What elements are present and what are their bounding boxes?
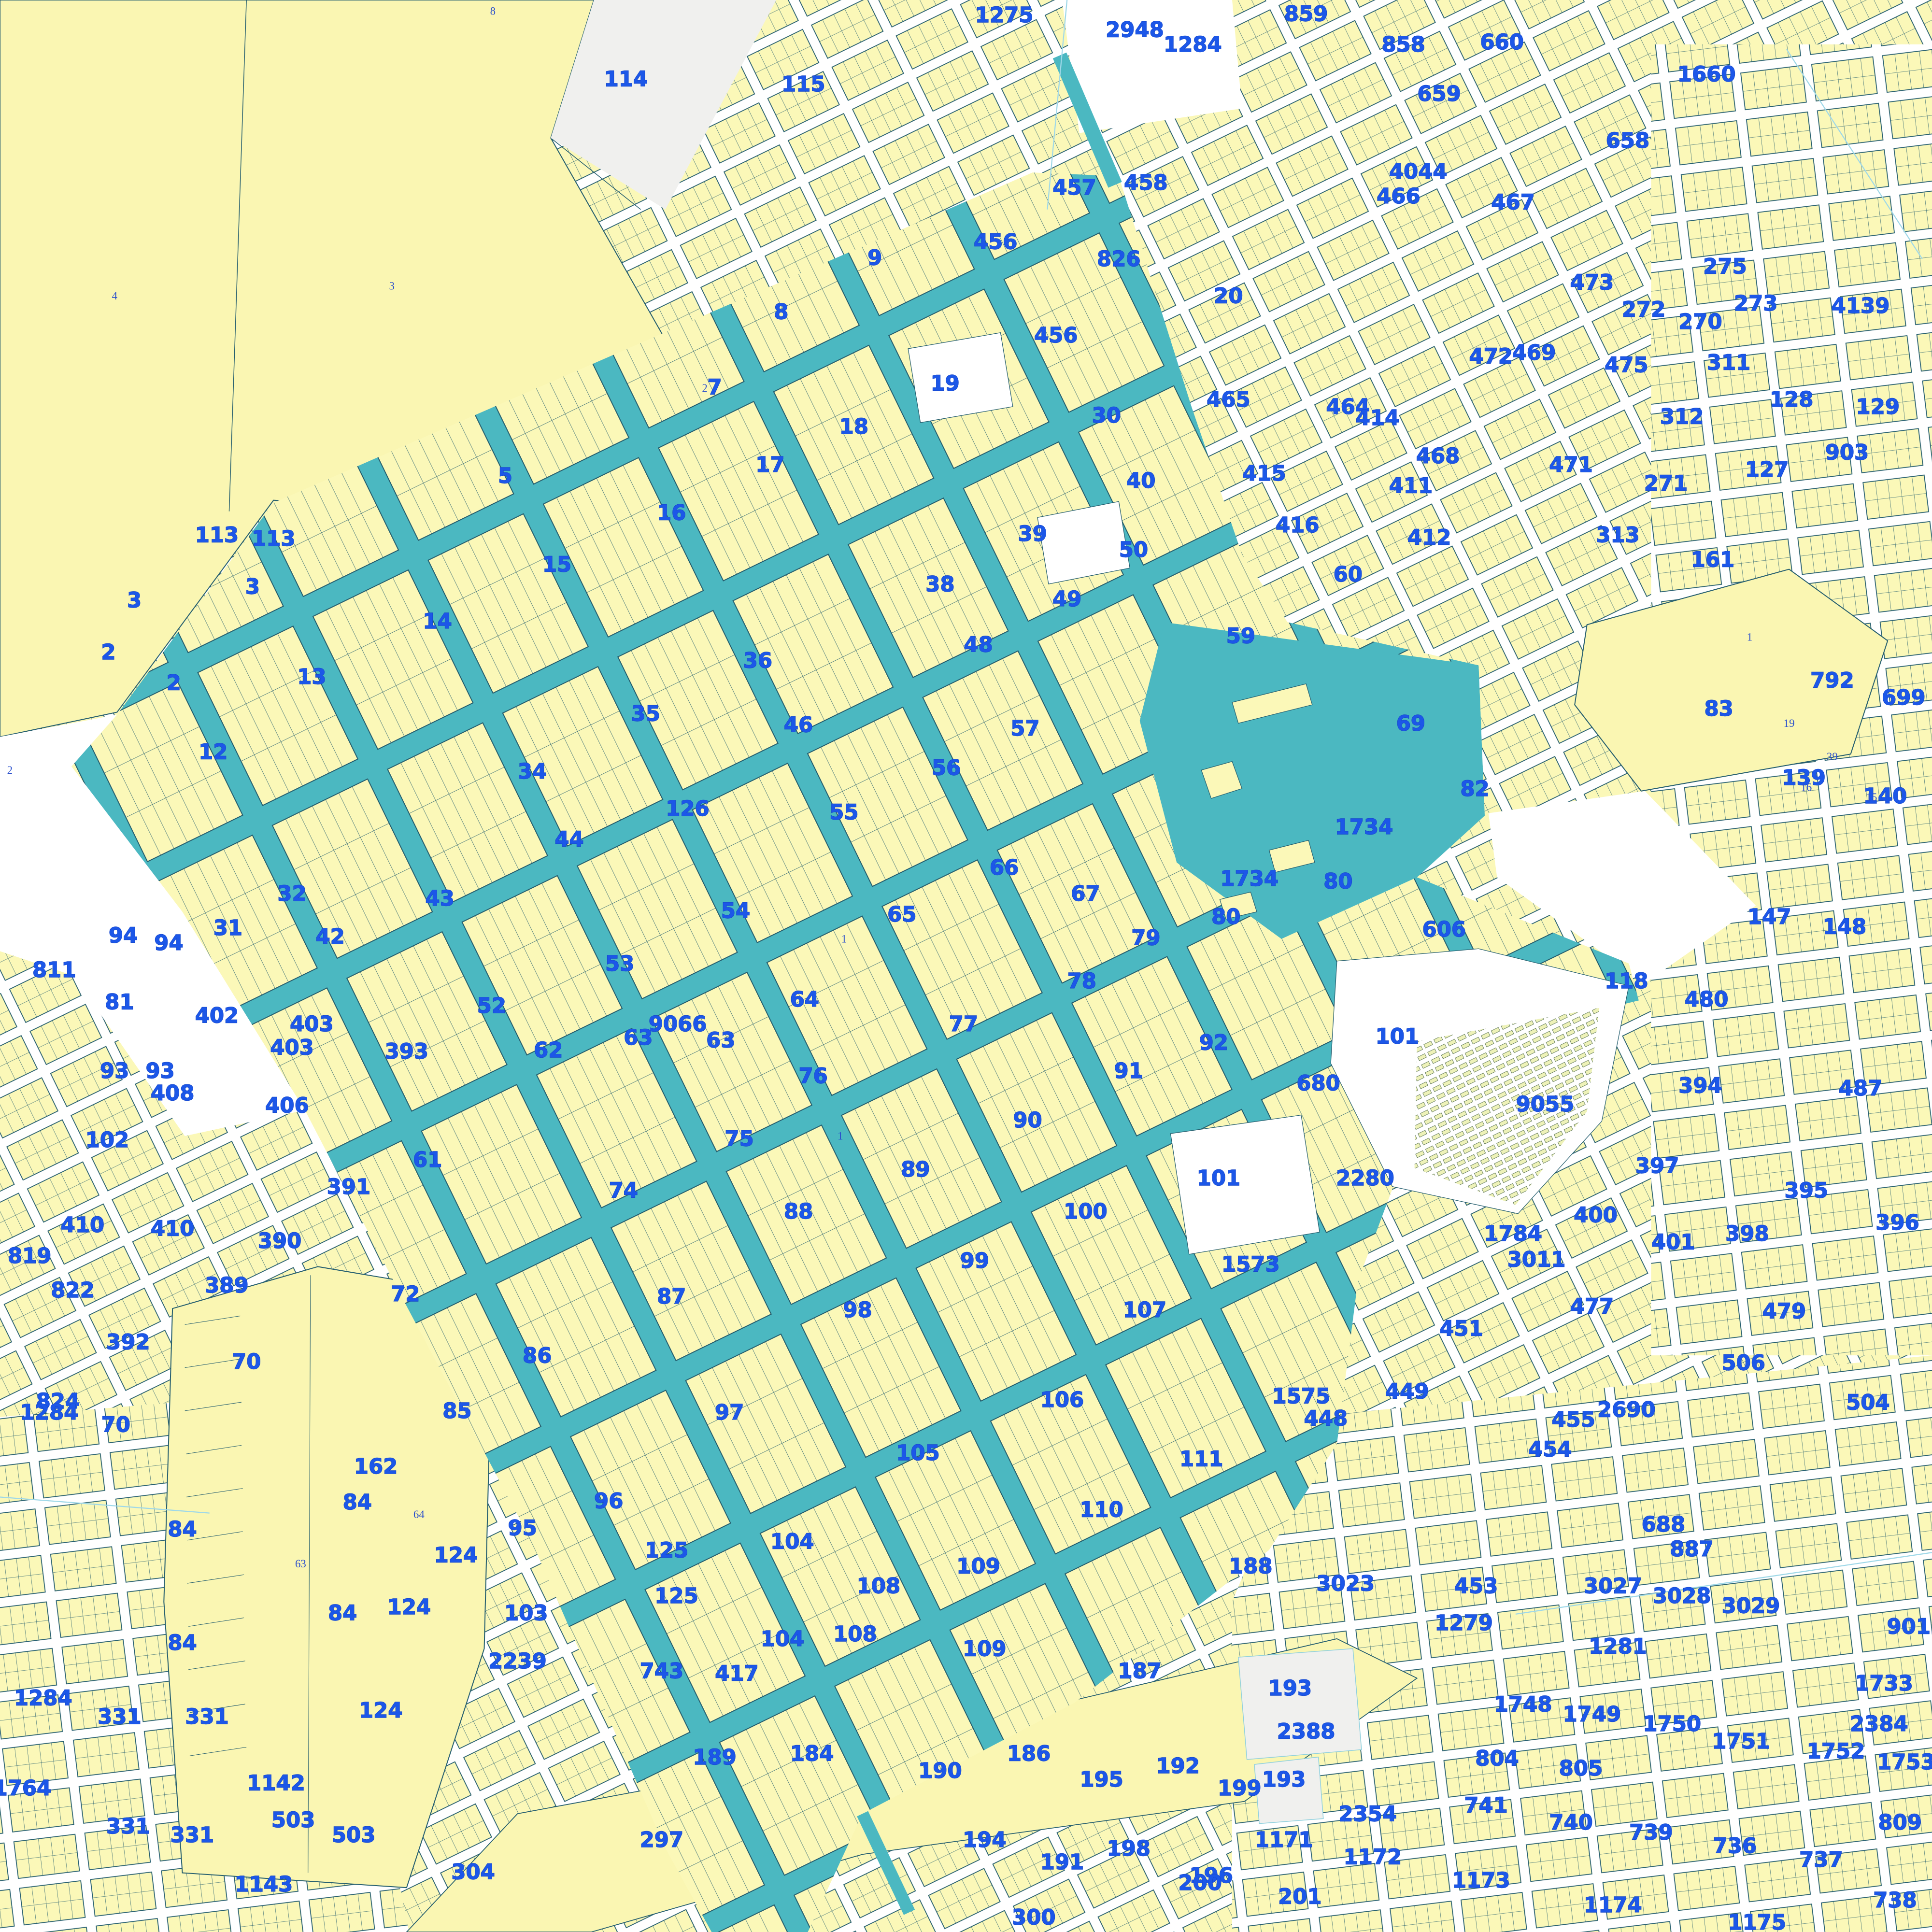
block-label: 97 — [715, 1401, 744, 1425]
block-label: 480 — [1685, 988, 1729, 1012]
block-label: 104 — [761, 1627, 805, 1651]
block-label: 4044 — [1389, 160, 1448, 184]
block-label: 859 — [1284, 2, 1328, 26]
block-label: 394 — [1678, 1074, 1722, 1098]
block-label: 699 — [1882, 686, 1926, 710]
block-label: 5 — [498, 464, 512, 488]
block-label: 1275 — [975, 3, 1034, 28]
block-label: 736 — [1713, 1834, 1757, 1859]
block-label: 161 — [1691, 548, 1735, 572]
block-label: 448 — [1304, 1407, 1348, 1431]
block-label: 87 — [657, 1285, 686, 1309]
block-label: 40 — [1126, 469, 1155, 493]
block-label: 190 — [918, 1759, 962, 1783]
block-label: 106 — [1040, 1388, 1084, 1412]
block-label: 479 — [1762, 1300, 1806, 1324]
block-label: 162 — [354, 1455, 398, 1479]
block-label: 64 — [790, 988, 819, 1012]
block-label: 415 — [1242, 462, 1286, 486]
block-label: 53 — [605, 952, 634, 976]
block-label: 127 — [1745, 458, 1789, 482]
block-label: 192 — [1156, 1754, 1200, 1778]
block-label: 1279 — [1435, 1611, 1493, 1635]
block-label: 271 — [1644, 471, 1688, 496]
block-label: 270 — [1678, 310, 1722, 334]
block-label: 86 — [523, 1344, 552, 1368]
block-label: 72 — [391, 1282, 420, 1307]
block-label: 91 — [1114, 1059, 1143, 1083]
block-label: 62 — [534, 1038, 563, 1063]
block-label: 124 — [387, 1595, 431, 1619]
parcel-number: 4 — [112, 290, 118, 302]
block-label: 1733 — [1855, 1672, 1913, 1696]
block-label: 65 — [887, 903, 916, 927]
block-label: 109 — [956, 1555, 1000, 1579]
block-label: 84 — [168, 1631, 197, 1655]
block-label: 80 — [1211, 905, 1240, 929]
block-label: 2388 — [1277, 1719, 1335, 1744]
block-label: 414 — [1356, 406, 1400, 430]
block-label: 297 — [640, 1828, 684, 1852]
block-label: 1752 — [1807, 1739, 1865, 1763]
block-label: 1284 — [20, 1401, 79, 1425]
block-label: 82 — [1460, 777, 1489, 801]
block-label: 113 — [252, 527, 296, 551]
block-label: 12 — [199, 740, 227, 764]
block-label: 454 — [1528, 1437, 1572, 1462]
block-label: 126 — [666, 797, 710, 821]
block-label: 1749 — [1563, 1703, 1621, 1727]
block-label: 108 — [833, 1622, 877, 1647]
block-label: 85 — [442, 1399, 471, 1423]
block-label: 391 — [327, 1175, 371, 1199]
block-label: 1753 — [1877, 1750, 1932, 1775]
block-label: 198 — [1107, 1837, 1151, 1861]
block-label: 390 — [258, 1229, 302, 1253]
block-label: 36 — [743, 649, 772, 673]
block-label: 449 — [1385, 1379, 1429, 1404]
block-label: 456 — [1034, 324, 1078, 348]
block-label: 94 — [154, 931, 183, 955]
block-label: 1172 — [1343, 1846, 1402, 1870]
parcel-number: 63 — [295, 1558, 306, 1570]
block-label: 410 — [61, 1213, 105, 1237]
block-label: 92 — [1199, 1031, 1228, 1055]
block-label: 805 — [1559, 1757, 1603, 1781]
block-label: 67 — [1071, 882, 1100, 906]
block-label: 1748 — [1494, 1692, 1552, 1717]
block-label: 3028 — [1653, 1584, 1711, 1608]
block-label: 42 — [316, 925, 345, 949]
block-label: 455 — [1551, 1408, 1595, 1432]
block-label: 104 — [770, 1530, 814, 1554]
block-label: 44 — [554, 828, 583, 852]
block-label: 468 — [1416, 444, 1460, 469]
block-label: 1175 — [1728, 1911, 1786, 1932]
white-block-19 — [908, 333, 1013, 423]
block-label: 393 — [385, 1039, 429, 1064]
block-label: 1143 — [235, 1873, 293, 1897]
block-label: 124 — [434, 1544, 478, 1568]
block-label: 504 — [1846, 1391, 1890, 1415]
block-label: 400 — [1574, 1204, 1618, 1228]
block-label: 189 — [693, 1746, 737, 1770]
block-label: 70 — [101, 1413, 130, 1437]
block-label: 465 — [1207, 388, 1250, 412]
block-label: 2354 — [1338, 1802, 1397, 1826]
block-label: 475 — [1605, 353, 1648, 377]
block-label: 74 — [609, 1179, 638, 1203]
block-label: 200 — [1178, 1871, 1222, 1895]
block-label: 659 — [1417, 82, 1461, 106]
block-label: 16 — [657, 501, 686, 526]
block-label: 903 — [1825, 441, 1869, 465]
block-label: 1734 — [1335, 815, 1393, 839]
block-label: 503 — [332, 1823, 376, 1847]
block-label: 15 — [542, 553, 571, 577]
block-label: 57 — [1010, 717, 1039, 741]
block-label: 487 — [1839, 1077, 1883, 1101]
block-label: 737 — [1799, 1848, 1843, 1872]
block-label: 1284 — [14, 1687, 72, 1711]
block-label: 66 — [990, 856, 1019, 880]
cadastral-map: 1141159871275294812848598586606591660658… — [0, 0, 1932, 1932]
block-label: 858 — [1381, 33, 1425, 57]
block-label: 32 — [277, 882, 306, 906]
parcel-number: 1 — [838, 1130, 843, 1142]
block-label: 804 — [1475, 1747, 1519, 1771]
parcel-number: 39 — [1827, 751, 1838, 763]
block-label: 52 — [477, 994, 506, 1018]
block-label: 792 — [1810, 668, 1854, 693]
block-label: 396 — [1875, 1211, 1919, 1235]
block-label: 78 — [1067, 969, 1096, 994]
block-label: 88 — [784, 1200, 813, 1224]
block-label: 1784 — [1484, 1222, 1542, 1246]
block-label: 80 — [1323, 869, 1352, 894]
block-label: 331 — [170, 1823, 214, 1847]
block-label: 61 — [413, 1148, 442, 1172]
block-label: 3023 — [1316, 1572, 1375, 1596]
block-label: 102 — [85, 1128, 129, 1152]
block-label: 90 — [1013, 1108, 1042, 1133]
block-label: 403 — [270, 1036, 314, 1060]
parcel-number: 64 — [413, 1508, 425, 1520]
block-label: 471 — [1549, 453, 1593, 477]
block-label: 83 — [1705, 697, 1733, 721]
block-label: 477 — [1570, 1294, 1614, 1319]
block-label: 9066 — [649, 1012, 707, 1037]
block-label: 458 — [1124, 171, 1168, 195]
block-label: 331 — [106, 1815, 150, 1839]
block-label: 124 — [359, 1699, 403, 1723]
block-label: 451 — [1439, 1317, 1483, 1341]
block-label: 1734 — [1220, 867, 1279, 891]
block-label: 1764 — [0, 1776, 51, 1801]
parcel-number: 2 — [7, 764, 13, 776]
block-label: 680 — [1296, 1072, 1340, 1096]
block-label: 408 — [151, 1081, 195, 1106]
block-label: 503 — [271, 1808, 315, 1833]
block-label: 1173 — [1452, 1869, 1510, 1893]
block-label: 84 — [168, 1518, 197, 1542]
block-label: 101 — [1376, 1025, 1420, 1049]
block-label: 506 — [1721, 1351, 1765, 1376]
block-label: 186 — [1007, 1742, 1051, 1766]
block-label: 660 — [1480, 30, 1524, 55]
block-label: 108 — [857, 1574, 901, 1598]
block-label: 411 — [1389, 474, 1433, 498]
block-label: 201 — [1278, 1885, 1322, 1909]
block-label: 402 — [195, 1004, 239, 1028]
block-label: 819 — [8, 1244, 52, 1268]
block-label: 466 — [1377, 185, 1421, 209]
block-label: 2 — [101, 640, 115, 665]
parcel-number: 2 — [702, 382, 707, 394]
block-label: 1281 — [1589, 1634, 1647, 1659]
block-label: 811 — [32, 958, 76, 982]
block-label: 48 — [964, 633, 993, 657]
block-label: 125 — [654, 1584, 698, 1608]
block-label: 98 — [843, 1298, 872, 1322]
block-label: 1142 — [247, 1772, 305, 1796]
parcel-number: 1 — [1747, 631, 1752, 643]
block-label: 35 — [631, 702, 660, 726]
block-label: 56 — [932, 756, 961, 781]
block-label: 79 — [1131, 926, 1160, 951]
block-label: 389 — [205, 1274, 249, 1298]
block-label: 331 — [98, 1705, 142, 1729]
block-label: 1174 — [1584, 1893, 1642, 1918]
block-label: 9055 — [1516, 1093, 1575, 1117]
block-label: 94 — [109, 924, 138, 948]
block-label: 392 — [106, 1330, 150, 1354]
block-label: 111 — [1179, 1448, 1223, 1472]
block-label: 93 — [145, 1059, 174, 1083]
block-label: 125 — [645, 1538, 689, 1563]
block-label: 1284 — [1164, 33, 1222, 57]
block-label: 469 — [1512, 341, 1556, 365]
block-label: 7 — [708, 375, 722, 399]
block-label: 63 — [706, 1028, 735, 1052]
block-label: 275 — [1703, 255, 1747, 279]
block-label: 743 — [640, 1659, 684, 1683]
block-label: 14 — [423, 610, 452, 634]
block-label: 1660 — [1677, 62, 1736, 86]
block-label: 101 — [1197, 1166, 1241, 1191]
parcel-number: 8 — [490, 5, 496, 17]
block-label: 34 — [518, 760, 547, 784]
block-label: 30 — [1092, 404, 1121, 428]
block-label: 398 — [1725, 1222, 1769, 1246]
block-label: 76 — [799, 1064, 828, 1088]
map-stage: 1141159871275294812848598586606591660658… — [0, 0, 1932, 1932]
block-label: 738 — [1873, 1889, 1917, 1913]
block-label: 1751 — [1712, 1730, 1770, 1754]
block-label: 397 — [1635, 1154, 1679, 1179]
block-label: 129 — [1856, 395, 1900, 419]
block-label: 467 — [1491, 191, 1535, 215]
block-label: 313 — [1596, 523, 1640, 547]
block-label: 60 — [1334, 563, 1363, 587]
block-label: 410 — [151, 1217, 195, 1241]
block-label: 2948 — [1106, 18, 1164, 43]
block-label: 114 — [604, 68, 648, 92]
block-label: 39 — [1018, 522, 1047, 546]
block-label: 1573 — [1222, 1253, 1280, 1277]
block-label: 193 — [1262, 1768, 1306, 1792]
block-label: 2280 — [1336, 1166, 1394, 1191]
block-label: 19 — [930, 372, 959, 396]
block-label: 107 — [1123, 1298, 1167, 1322]
block-label: 128 — [1770, 388, 1814, 412]
block-label: 89 — [901, 1158, 930, 1182]
parcel-number: 16 — [1801, 781, 1812, 794]
block-label: 403 — [290, 1012, 334, 1037]
block-label: 2 — [167, 671, 181, 696]
block-label: 331 — [185, 1705, 229, 1729]
block-label: 50 — [1119, 538, 1148, 562]
block-label: 688 — [1642, 1513, 1686, 1537]
block-label: 113 — [195, 523, 239, 547]
block-label: 77 — [949, 1012, 978, 1037]
block-label: 81 — [105, 990, 134, 1014]
block-label: 3011 — [1507, 1248, 1566, 1272]
block-label: 18 — [839, 415, 868, 439]
block-label: 1575 — [1272, 1385, 1331, 1409]
block-label: 43 — [426, 887, 455, 911]
block-label: 105 — [896, 1441, 940, 1465]
block-label: 3 — [127, 589, 142, 613]
block-label: 395 — [1785, 1179, 1829, 1203]
block-label: 69 — [1396, 712, 1425, 736]
block-label: 188 — [1229, 1555, 1273, 1579]
block-label: 110 — [1080, 1498, 1123, 1522]
block-label: 95 — [508, 1517, 537, 1541]
block-label: 453 — [1454, 1574, 1498, 1598]
block-label: 457 — [1052, 176, 1096, 200]
block-label: 300 — [1012, 1906, 1056, 1930]
block-label: 55 — [829, 800, 858, 824]
block-label: 741 — [1464, 1794, 1508, 1818]
block-label: 2690 — [1597, 1398, 1656, 1422]
block-label: 272 — [1622, 298, 1666, 322]
block-label: 472 — [1469, 345, 1513, 369]
block-label: 3029 — [1722, 1594, 1780, 1618]
block-label: 826 — [1097, 247, 1141, 271]
block-label: 304 — [451, 1860, 495, 1884]
block-label: 93 — [100, 1059, 129, 1083]
white-block-101-park — [1170, 1115, 1320, 1254]
parcel-number: 1 — [841, 933, 847, 945]
block-label: 100 — [1064, 1200, 1108, 1224]
block-label: 658 — [1606, 129, 1650, 153]
block-label: 194 — [963, 1828, 1007, 1852]
block-label: 38 — [925, 572, 954, 597]
block-label: 740 — [1549, 1811, 1593, 1835]
block-label: 46 — [784, 713, 813, 737]
block-label: 416 — [1276, 513, 1320, 538]
block-label: 31 — [213, 916, 242, 940]
block-label: 109 — [963, 1637, 1007, 1662]
parcel-number: 19 — [1784, 717, 1795, 729]
block-label: 70 — [232, 1350, 261, 1374]
block-label: 199 — [1218, 1776, 1262, 1801]
block-label: 1171 — [1255, 1828, 1313, 1852]
block-label: 84 — [343, 1491, 372, 1515]
block-label: 96 — [594, 1489, 623, 1513]
block-label: 2384 — [1850, 1712, 1908, 1736]
block-label: 17 — [755, 453, 784, 477]
block-label: 4139 — [1832, 294, 1890, 318]
block-label: 3027 — [1584, 1574, 1642, 1598]
block-label: 412 — [1407, 526, 1451, 550]
block-label: 148 — [1823, 915, 1867, 939]
block-label: 2239 — [488, 1649, 547, 1674]
block-label: 739 — [1629, 1821, 1673, 1845]
block-label: 84 — [328, 1602, 357, 1626]
block-label: 54 — [721, 899, 750, 923]
block-label: 75 — [724, 1127, 753, 1151]
block-label: 191 — [1040, 1850, 1084, 1875]
block-label: 887 — [1670, 1537, 1714, 1562]
block-label: 822 — [51, 1279, 95, 1303]
block-label: 20 — [1214, 284, 1243, 309]
block-label: 3 — [245, 575, 260, 599]
block-label: 417 — [715, 1662, 759, 1686]
block-label: 13 — [297, 665, 326, 689]
parcel-number: 15 — [1866, 791, 1877, 803]
parcel-number: 3 — [389, 280, 394, 292]
block-label: 195 — [1080, 1768, 1123, 1792]
block-label: 9012 — [1887, 1615, 1932, 1639]
block-label: 456 — [974, 230, 1018, 254]
block-label: 1750 — [1643, 1712, 1701, 1736]
block-label: 9 — [867, 246, 882, 270]
block-label: 809 — [1878, 1811, 1922, 1835]
block-label: 606 — [1422, 918, 1466, 942]
block-label: 8 — [774, 300, 788, 325]
block-label: 115 — [781, 72, 825, 97]
block-label: 59 — [1226, 625, 1255, 649]
block-label: 401 — [1651, 1231, 1695, 1255]
block-label: 118 — [1605, 969, 1648, 994]
block-label: 187 — [1118, 1659, 1162, 1683]
block-label: 99 — [960, 1249, 989, 1273]
block-label: 311 — [1707, 351, 1751, 375]
block-label: 406 — [265, 1094, 309, 1118]
block-label: 273 — [1734, 292, 1778, 316]
block-label: 103 — [504, 1602, 548, 1626]
block-label: 49 — [1052, 587, 1081, 611]
block-label: 147 — [1747, 905, 1791, 929]
block-label: 184 — [790, 1742, 834, 1766]
block-label: 312 — [1660, 405, 1704, 429]
block-label: 193 — [1268, 1676, 1312, 1701]
block-label: 473 — [1570, 270, 1614, 295]
